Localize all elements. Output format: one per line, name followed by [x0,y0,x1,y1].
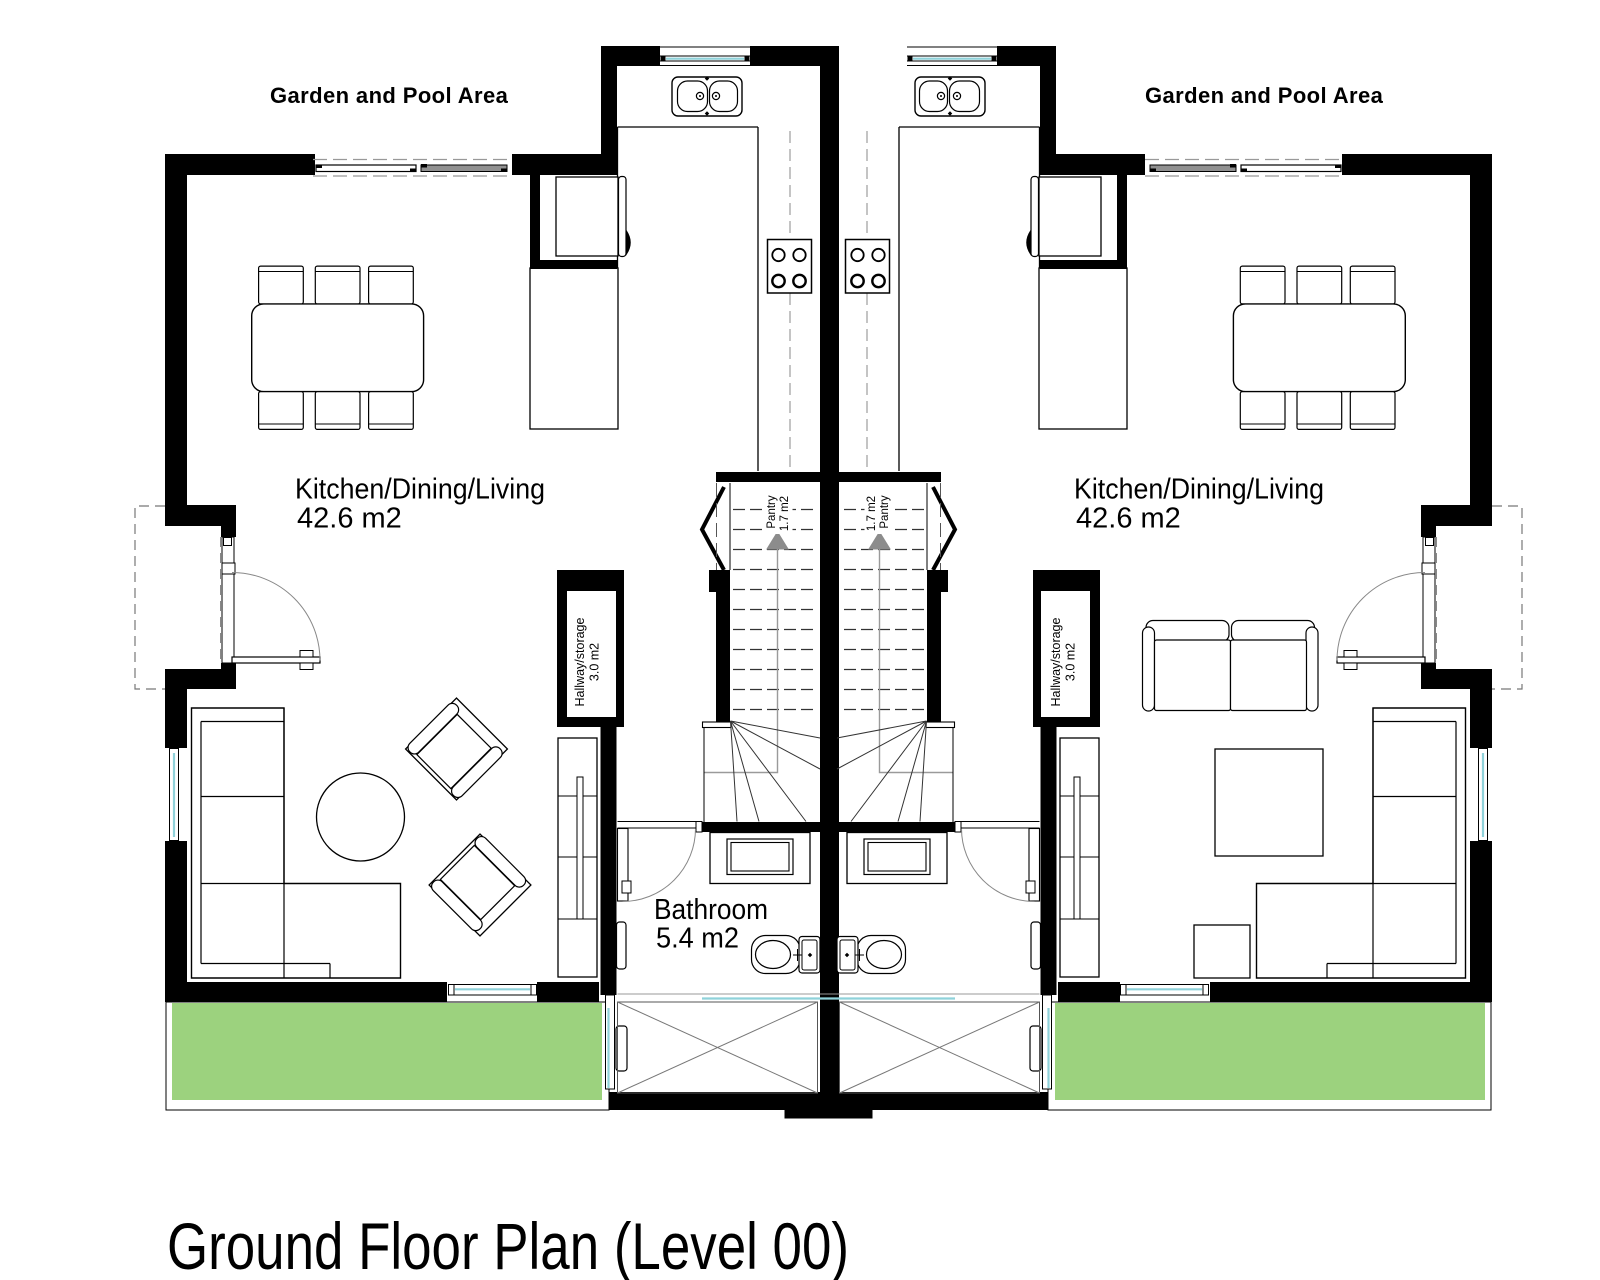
svg-text:Pantry: Pantry [879,495,891,528]
svg-text:Kitchen/Dining/Living: Kitchen/Dining/Living [1074,474,1324,506]
svg-text:Pantry: Pantry [766,495,778,528]
svg-text:Garden and Pool Area: Garden and Pool Area [1145,83,1384,108]
svg-text:Bathroom: Bathroom [654,894,768,926]
svg-text:42.6 m2: 42.6 m2 [1076,503,1181,535]
svg-text:3.0 m2: 3.0 m2 [1064,643,1078,681]
svg-text:1.7 m2: 1.7 m2 [866,496,878,531]
svg-text:3.0 m2: 3.0 m2 [588,643,602,681]
svg-text:Ground Floor Plan (Level 00): Ground Floor Plan (Level 00) [167,1209,849,1280]
svg-text:42.6 m2: 42.6 m2 [297,503,402,535]
svg-text:Hallway/storage: Hallway/storage [1049,617,1063,706]
svg-text:Kitchen/Dining/Living: Kitchen/Dining/Living [295,474,545,506]
svg-text:Garden and Pool Area: Garden and Pool Area [270,83,509,108]
svg-text:5.4 m2: 5.4 m2 [656,923,739,955]
svg-text:Hallway/storage: Hallway/storage [573,617,587,706]
svg-text:1.7 m2: 1.7 m2 [779,496,791,531]
